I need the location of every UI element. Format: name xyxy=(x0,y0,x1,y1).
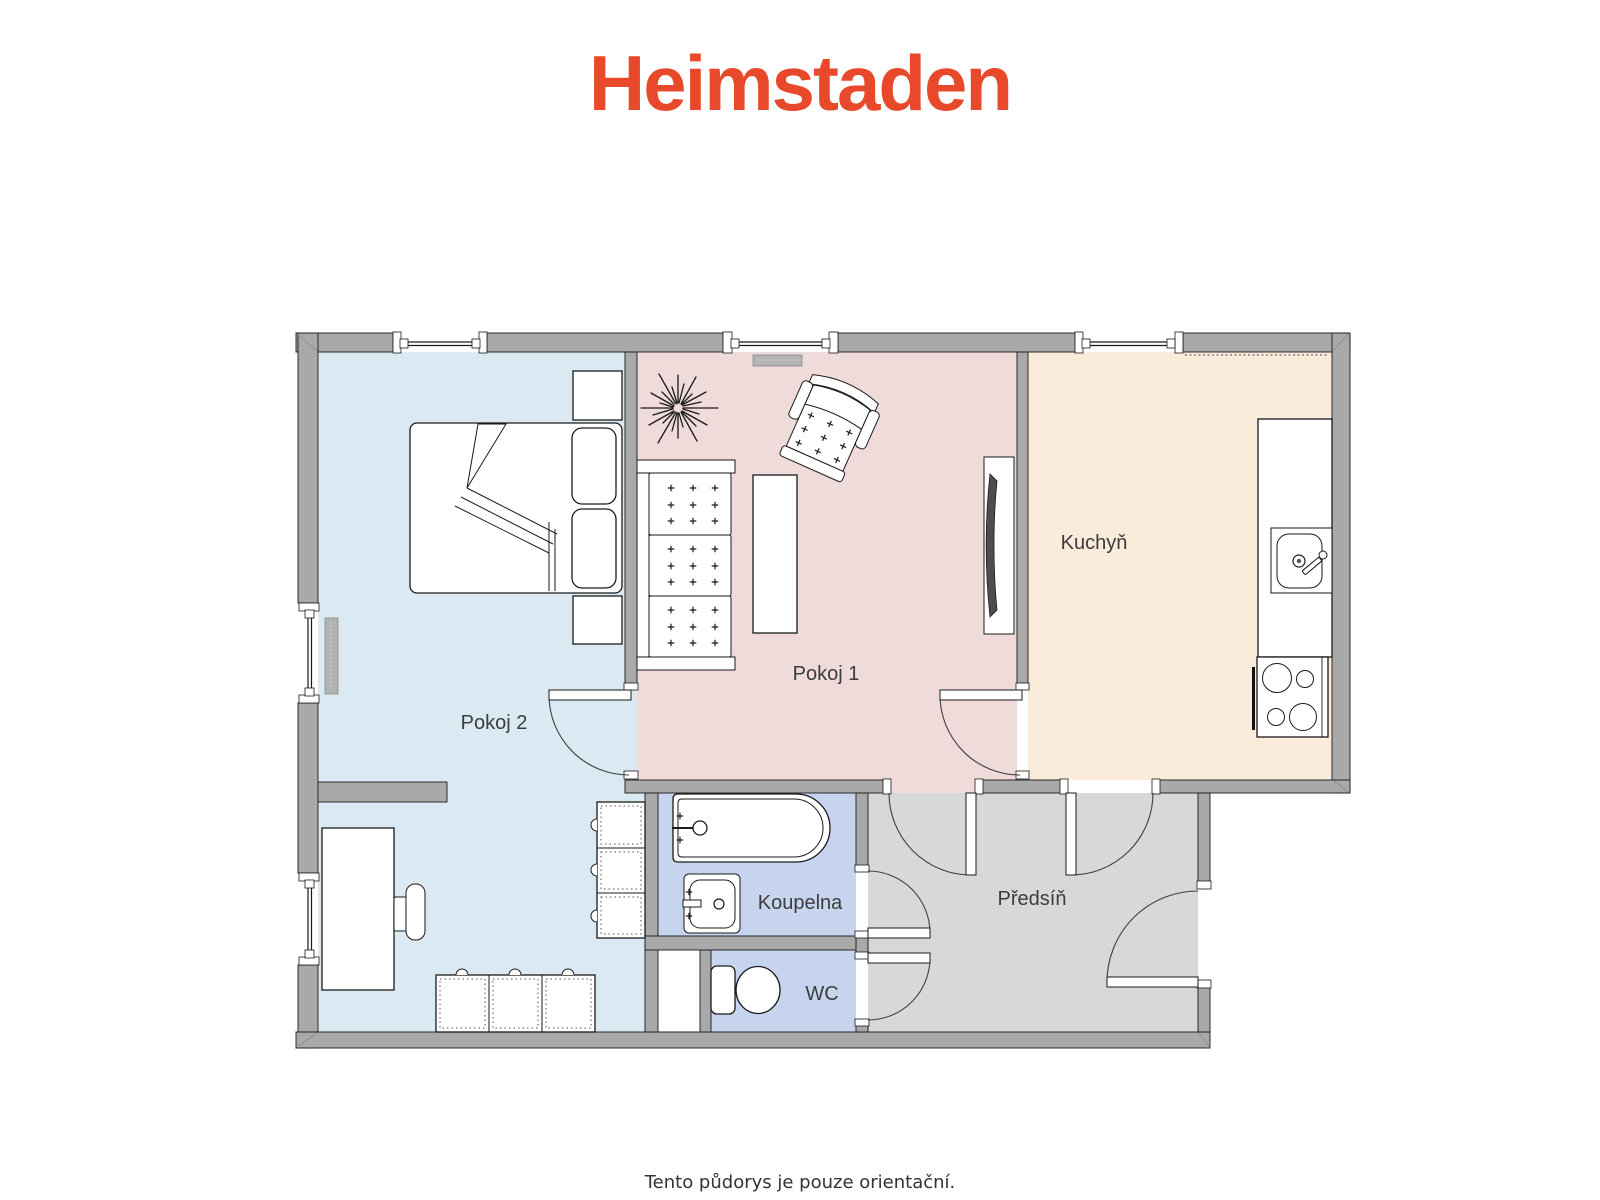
label-kuchyn: Kuchyň xyxy=(1061,532,1128,554)
window-icon xyxy=(393,332,487,353)
coffee-table-icon xyxy=(753,475,797,633)
floorplan-canvas: Pokoj 2 Pokoj 1 Kuchyň Koupelna WC Předs… xyxy=(0,0,1600,1200)
window-icon xyxy=(299,873,319,965)
washbasin-icon xyxy=(683,874,740,933)
label-pokoj2: Pokoj 2 xyxy=(461,712,528,734)
kitchen-sink-icon xyxy=(1271,528,1332,593)
wardrobe-icon xyxy=(591,802,645,938)
bathtub-icon xyxy=(672,794,830,862)
pillow-icon xyxy=(572,428,616,504)
kuchyn-furniture xyxy=(1252,419,1332,737)
toilet-icon xyxy=(711,966,780,1014)
window-icon xyxy=(1075,332,1183,353)
pillow-icon xyxy=(572,509,616,588)
label-wc: WC xyxy=(805,983,838,1005)
radiator-icon xyxy=(753,355,802,366)
sofa-icon xyxy=(637,460,735,670)
label-predsin: Předsíň xyxy=(998,888,1067,910)
stove-icon xyxy=(1252,657,1328,737)
window-icon xyxy=(723,332,838,353)
chest-of-drawers-icon xyxy=(436,969,595,1032)
disclaimer-text: Tento půdorys je pouze orientační. xyxy=(0,1172,1600,1193)
tv-icon xyxy=(984,457,1014,634)
radiator-icon xyxy=(325,618,338,694)
window-icon xyxy=(299,603,319,703)
oven-handle-icon xyxy=(1252,667,1255,730)
label-koupelna: Koupelna xyxy=(758,892,843,914)
double-bed-icon xyxy=(410,423,622,593)
nightstand-icon xyxy=(573,371,622,420)
floorplan-page: Heimstaden xyxy=(0,0,1600,1200)
utility-shaft xyxy=(658,950,700,1032)
label-pokoj1: Pokoj 1 xyxy=(793,663,860,685)
nightstand-icon xyxy=(573,596,622,644)
desk-icon xyxy=(322,828,394,990)
